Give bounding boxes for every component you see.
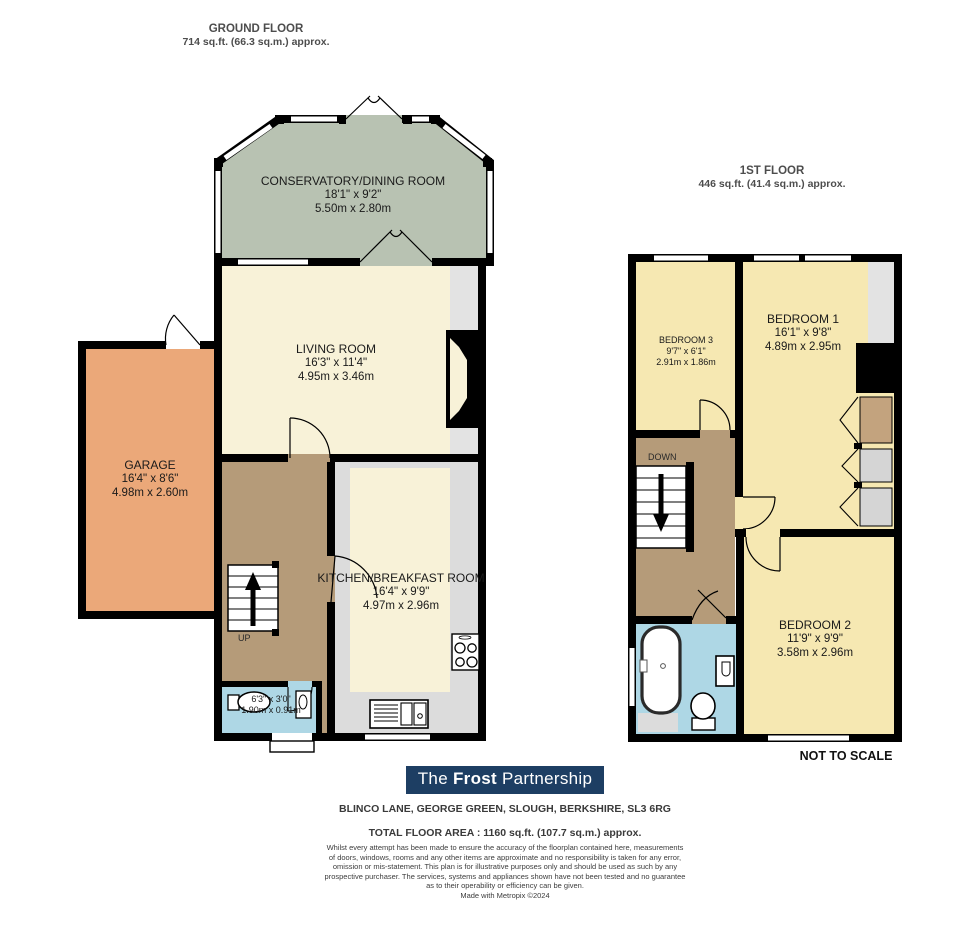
room-label-wc: 6'3" x 3'0" 1.90m x 0.91m bbox=[221, 694, 321, 716]
room-size-imperial: 16'3" x 11'4" bbox=[236, 356, 436, 370]
room-size-imperial: 16'4" x 8'6" bbox=[70, 472, 230, 486]
room-size-metric: 4.95m x 3.46m bbox=[236, 370, 436, 384]
sink-icon bbox=[716, 656, 734, 686]
logo-the: The bbox=[418, 769, 448, 788]
stairs-up-label: UP bbox=[238, 633, 251, 643]
room-size-metric: 4.97m x 2.96m bbox=[301, 599, 501, 613]
room-size-imperial: 11'9" x 9'9" bbox=[725, 632, 905, 646]
conservatory-door-opening bbox=[346, 115, 402, 124]
room-size-imperial: 6'3" x 3'0" bbox=[221, 694, 321, 705]
room-name: BEDROOM 1 bbox=[713, 312, 893, 326]
room-name: CONSERVATORY/DINING ROOM bbox=[233, 174, 473, 188]
disclaimer-line: omission or mis-statement. This plan is … bbox=[15, 862, 980, 872]
living-hall-door-opening bbox=[288, 454, 330, 462]
room-size-imperial: 18'1" x 9'2" bbox=[233, 188, 473, 202]
living-alcove-bottom bbox=[450, 428, 478, 454]
disclaimer: Whilst every attempt has been made to en… bbox=[15, 843, 980, 891]
floor-name: 1ST FLOOR bbox=[652, 164, 892, 178]
garage-door-opening bbox=[166, 341, 200, 349]
stairs-down-label: DOWN bbox=[648, 452, 677, 462]
bathtub-icon bbox=[642, 627, 680, 713]
room-name: BEDROOM 2 bbox=[725, 618, 905, 632]
room-size-imperial: 16'4" x 9'9" bbox=[301, 585, 501, 599]
bathroom-door-opening bbox=[692, 616, 726, 624]
toilet-icon bbox=[691, 693, 715, 719]
living-alcove-top bbox=[450, 266, 478, 330]
room-size-metric: 2.91m x 1.86m bbox=[626, 357, 746, 368]
wc-door-opening bbox=[288, 681, 312, 687]
room-size-metric: 1.90m x 0.91m bbox=[221, 705, 321, 716]
room-size-imperial: 9'7" x 6'1" bbox=[626, 346, 746, 357]
stairs-up bbox=[228, 561, 279, 636]
kitchen-sink-icon bbox=[370, 700, 428, 728]
room-label-bedroom-3: BEDROOM 3 9'7" x 6'1" 2.91m x 1.86m bbox=[626, 335, 746, 368]
stairs-down bbox=[636, 462, 694, 552]
logo-frost: Frost bbox=[453, 769, 497, 788]
floorplan-page: GROUND FLOOR 714 sq.ft. (66.3 sq.m.) app… bbox=[0, 0, 980, 936]
property-address: BLINCO LANE, GEORGE GREEN, SLOUGH, BERKS… bbox=[15, 803, 980, 816]
footer: The Frost Partnership BLINCO LANE, GEORG… bbox=[15, 766, 980, 900]
floor-area: 714 sq.ft. (66.3 sq.m.) approx. bbox=[136, 36, 376, 49]
room-name: BEDROOM 3 bbox=[626, 335, 746, 346]
living-conservatory-door-opening bbox=[360, 258, 432, 266]
bathroom-mat bbox=[638, 713, 678, 732]
bedroom-1-door-opening bbox=[735, 497, 743, 529]
logo-partnership: Partnership bbox=[502, 769, 592, 788]
room-size-metric: 4.98m x 2.60m bbox=[70, 486, 230, 500]
room-size-metric: 5.50m x 2.80m bbox=[233, 202, 473, 216]
toilet-cistern-icon bbox=[692, 718, 715, 730]
room-name: GARAGE bbox=[70, 458, 230, 472]
room-label-bedroom-2: BEDROOM 2 11'9" x 9'9" 3.58m x 2.96m bbox=[725, 618, 905, 660]
disclaimer-line: of doors, windows, rooms and any other i… bbox=[15, 853, 980, 863]
stove-icon bbox=[452, 634, 479, 670]
garage-door bbox=[165, 315, 200, 345]
disclaimer-line: as to their operability or efficiency ca… bbox=[15, 881, 980, 891]
disclaimer-line: prospective purchaser. The services, sys… bbox=[15, 872, 980, 882]
not-to-scale-label: NOT TO SCALE bbox=[786, 749, 906, 763]
room-name: LIVING ROOM bbox=[236, 342, 436, 356]
ground-floor-title: GROUND FLOOR 714 sq.ft. (66.3 sq.m.) app… bbox=[136, 22, 376, 49]
disclaimer-line: Whilst every attempt has been made to en… bbox=[15, 843, 980, 853]
front-door-opening bbox=[272, 733, 312, 741]
room-size-metric: 3.58m x 2.96m bbox=[725, 646, 905, 660]
floor-name: GROUND FLOOR bbox=[136, 22, 376, 36]
porch-step bbox=[270, 741, 314, 752]
room-label-conservatory: CONSERVATORY/DINING ROOM 18'1" x 9'2" 5.… bbox=[233, 174, 473, 216]
bedroom-2-door-opening bbox=[746, 529, 780, 537]
total-floor-area: TOTAL FLOOR AREA : 1160 sq.ft. (107.7 sq… bbox=[15, 827, 980, 840]
metropix-credit: Made with Metropix ©2024 bbox=[15, 891, 980, 901]
floor-area: 446 sq.ft. (41.4 sq.m.) approx. bbox=[652, 178, 892, 191]
room-name: KITCHEN/BREAKFAST ROOM bbox=[301, 571, 501, 585]
frost-partnership-logo: The Frost Partnership bbox=[406, 766, 605, 794]
first-floor-title: 1ST FLOOR 446 sq.ft. (41.4 sq.m.) approx… bbox=[652, 164, 892, 191]
room-label-living-room: LIVING ROOM 16'3" x 11'4" 4.95m x 3.46m bbox=[236, 342, 436, 384]
room-label-kitchen: KITCHEN/BREAKFAST ROOM 16'4" x 9'9" 4.97… bbox=[301, 571, 501, 613]
room-label-garage: GARAGE 16'4" x 8'6" 4.98m x 2.60m bbox=[70, 458, 230, 500]
bedroom-3-door-opening bbox=[700, 430, 730, 438]
